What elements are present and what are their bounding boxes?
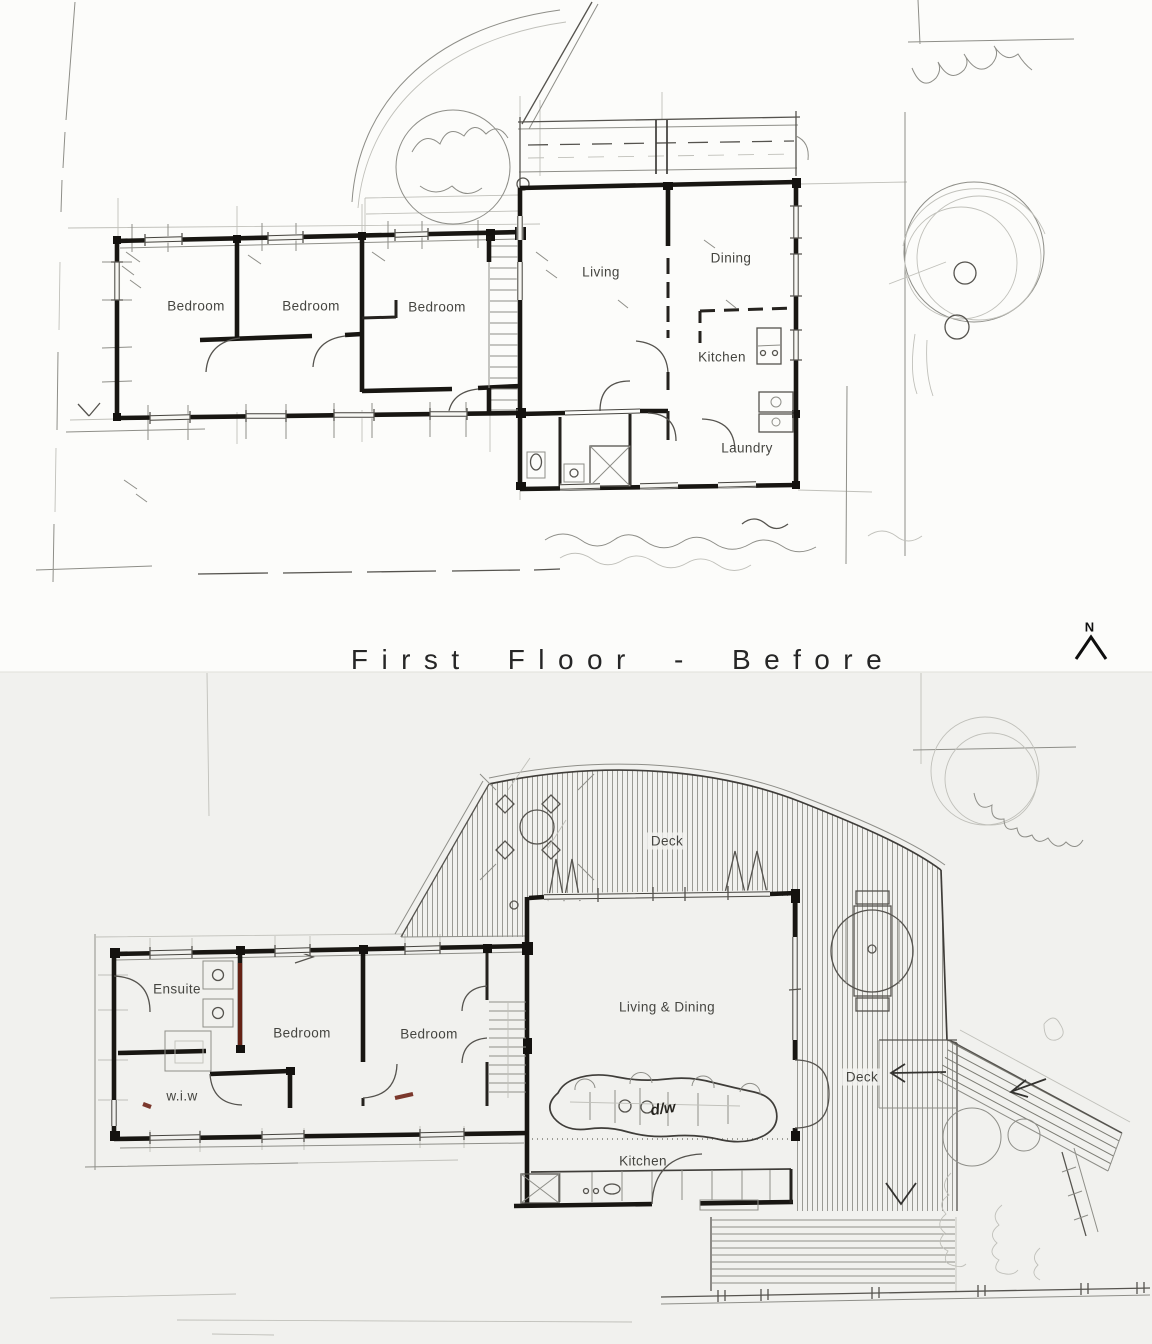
north-arrow-icon [1076,637,1106,659]
room-label-bedroom-2: Bedroom [282,299,340,314]
room-label-living-dining: Living & Dining [619,1000,715,1015]
tree-sketch-northeast [889,182,1045,396]
veranda-band [518,111,808,188]
windows-before [111,206,802,489]
plan-title: First Floor - Before [351,644,895,676]
room-label-wiw: w.i.w [166,1089,197,1104]
room-label-bedroom-1: Bedroom [167,299,225,314]
sketch-page: Bedroom Bedroom Bedroom Living Dining Ki… [0,0,1152,1344]
room-label-bedroom-4: Bedroom [273,1026,331,1041]
ground-contour-squiggle [545,534,816,552]
area-label-deck-side: Deck [842,1069,882,1086]
pencil-shading-strokes [122,240,736,502]
annotation-dishwasher: d/w [649,1099,676,1119]
room-label-ensuite: Ensuite [153,982,201,997]
room-label-bedroom-3: Bedroom [408,300,466,315]
room-label-kitchen: Kitchen [698,350,746,365]
room-label-kitchen-2: Kitchen [619,1154,667,1169]
room-label-dining: Dining [711,251,752,266]
area-label-deck-upper: Deck [647,833,687,850]
room-label-laundry: Laundry [721,441,773,456]
door-arcs-before [206,336,735,452]
plan-before [36,0,1074,582]
room-label-living: Living [582,265,620,280]
north-arrow-label: N [1085,620,1095,635]
contour-squiggle-top-right [912,46,1032,83]
room-label-bedroom-5: Bedroom [400,1027,458,1042]
tree-sketch-entry [396,110,529,224]
